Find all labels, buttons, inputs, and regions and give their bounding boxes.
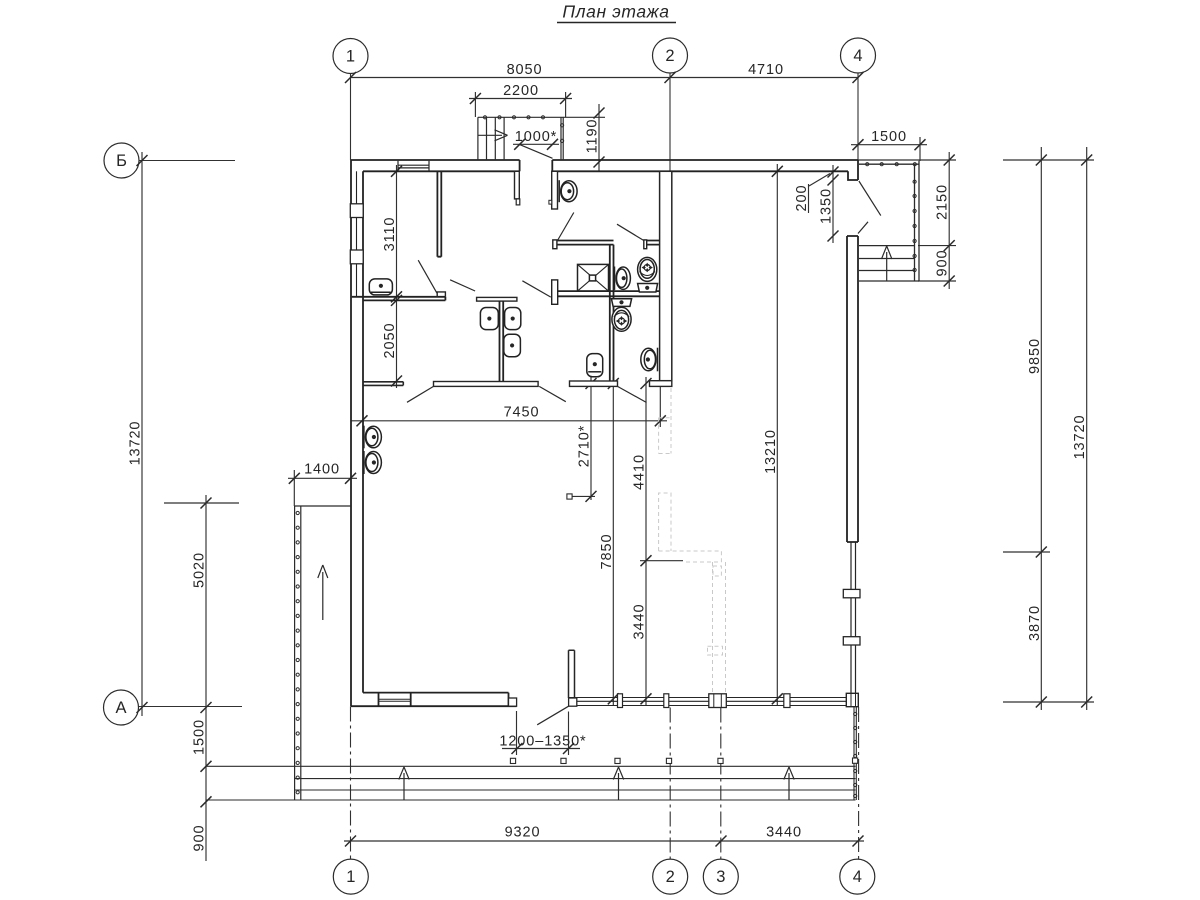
svg-text:5020: 5020 <box>192 552 208 588</box>
svg-text:1500: 1500 <box>192 719 208 755</box>
svg-text:План этажа: План этажа <box>562 2 669 22</box>
svg-text:4: 4 <box>853 47 862 65</box>
svg-text:Б: Б <box>116 152 127 170</box>
svg-text:1: 1 <box>346 868 355 886</box>
svg-text:13720: 13720 <box>128 421 144 466</box>
svg-text:1190: 1190 <box>585 119 601 154</box>
svg-text:200: 200 <box>794 185 810 212</box>
svg-text:9320: 9320 <box>505 825 541 841</box>
svg-text:1000*: 1000* <box>515 129 557 145</box>
svg-text:3870: 3870 <box>1027 605 1043 641</box>
svg-text:13210: 13210 <box>763 429 779 474</box>
svg-text:1500: 1500 <box>871 129 907 145</box>
svg-text:3: 3 <box>716 868 725 886</box>
svg-text:2050: 2050 <box>382 323 398 359</box>
svg-text:2710*: 2710* <box>577 425 593 467</box>
svg-text:13720: 13720 <box>1072 415 1088 460</box>
svg-text:3440: 3440 <box>632 604 648 640</box>
svg-text:8050: 8050 <box>507 62 543 78</box>
svg-text:4: 4 <box>853 868 862 886</box>
svg-text:4410: 4410 <box>632 454 648 490</box>
svg-text:9850: 9850 <box>1027 338 1043 374</box>
svg-text:3110: 3110 <box>382 217 398 252</box>
svg-text:1350: 1350 <box>819 188 835 224</box>
svg-text:7450: 7450 <box>504 404 540 420</box>
svg-text:1400: 1400 <box>304 461 340 477</box>
svg-text:2: 2 <box>666 868 675 886</box>
svg-text:1200–1350*: 1200–1350* <box>499 734 586 750</box>
svg-text:2150: 2150 <box>935 184 951 220</box>
svg-text:7850: 7850 <box>599 534 615 570</box>
svg-text:2: 2 <box>665 47 674 65</box>
svg-text:900: 900 <box>935 250 951 277</box>
svg-text:А: А <box>115 699 126 717</box>
svg-text:2200: 2200 <box>503 83 539 99</box>
svg-text:3440: 3440 <box>766 825 802 841</box>
svg-text:4710: 4710 <box>748 62 784 78</box>
svg-text:1: 1 <box>346 48 355 66</box>
svg-text:900: 900 <box>192 825 208 852</box>
